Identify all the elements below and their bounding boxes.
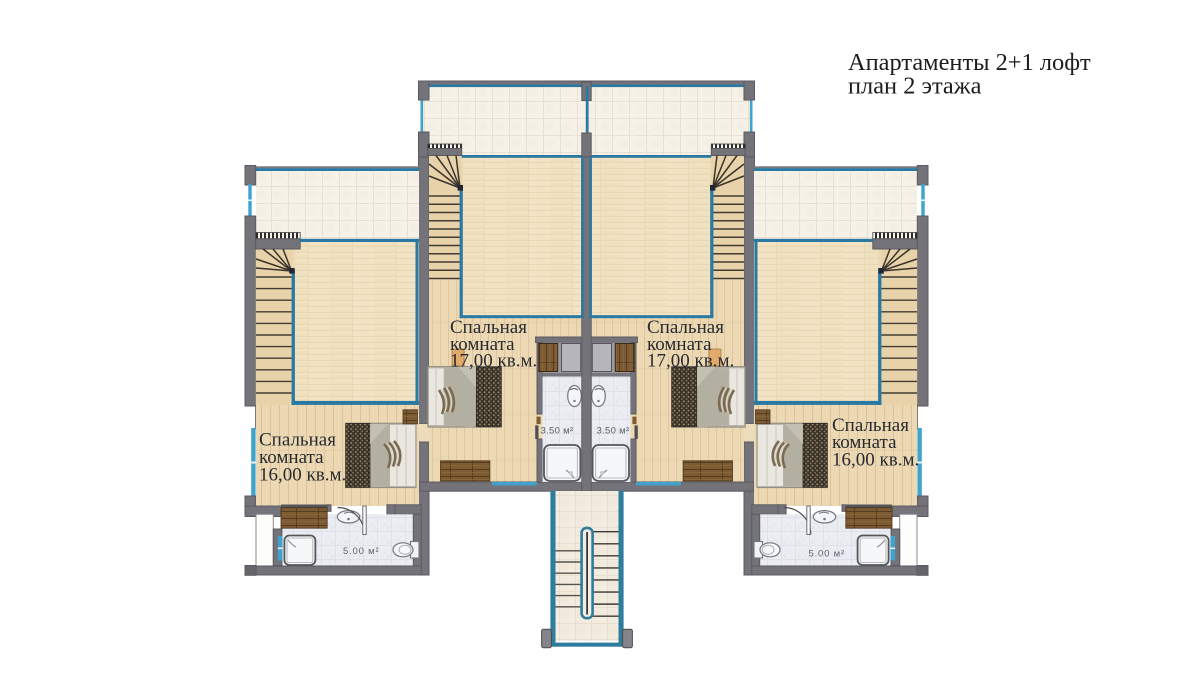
svg-text:3.50 м²: 3.50 м² bbox=[541, 426, 574, 437]
svg-text:16,00 кв.м.: 16,00 кв.м. bbox=[259, 465, 346, 486]
svg-text:3.50 м²: 3.50 м² bbox=[597, 426, 630, 437]
svg-text:17,00 кв.м.: 17,00 кв.м. bbox=[647, 351, 734, 372]
svg-text:16,00 кв.м.: 16,00 кв.м. bbox=[832, 449, 919, 470]
svg-text:17,00 кв.м.: 17,00 кв.м. bbox=[450, 351, 537, 372]
svg-text:план 2 этажа: план 2 этажа bbox=[848, 73, 982, 100]
svg-text:5.00 м²: 5.00 м² bbox=[809, 549, 845, 560]
svg-text:5.00 м²: 5.00 м² bbox=[343, 546, 379, 557]
